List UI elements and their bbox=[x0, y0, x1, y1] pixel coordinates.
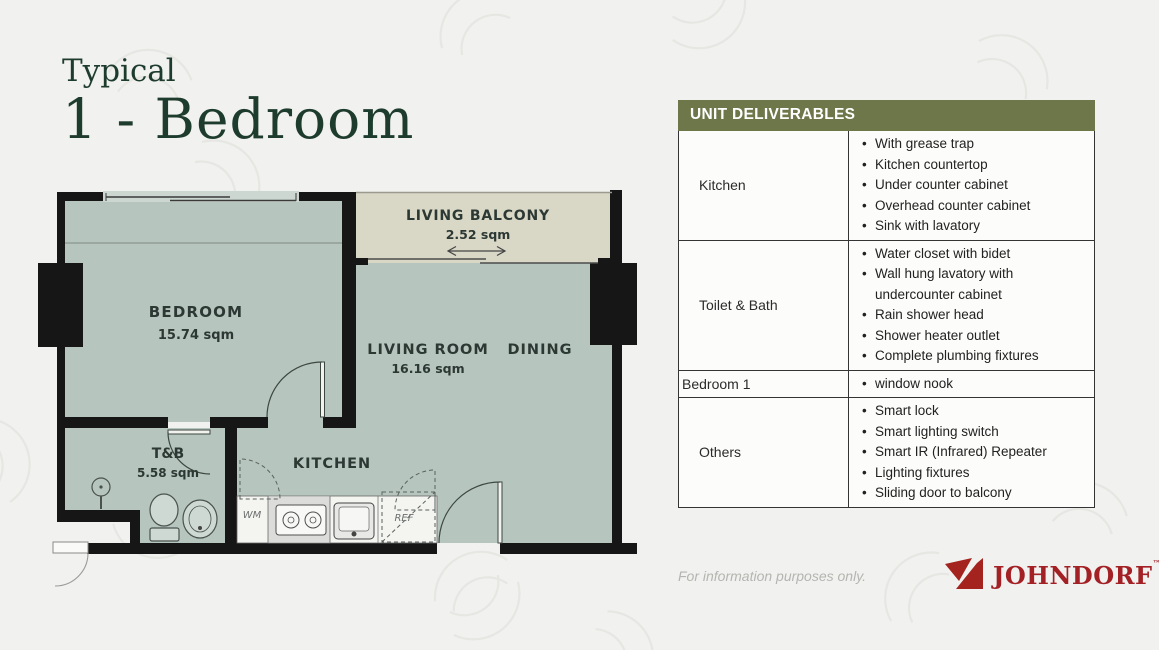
balcony-area: 2.52 sqm bbox=[446, 227, 511, 242]
deliverable-item: Complete plumbing fixtures bbox=[861, 346, 1088, 367]
lavatory-icon bbox=[183, 500, 217, 538]
deliverable-item: Under counter cabinet bbox=[861, 175, 1088, 196]
kitchen-label: KITCHEN bbox=[293, 456, 371, 472]
deliverables-row-label: Kitchen bbox=[679, 131, 849, 240]
kitchen-sink-icon bbox=[334, 503, 374, 539]
johndorf-logo-icon bbox=[944, 556, 984, 592]
trademark-symbol: ™ bbox=[1153, 558, 1159, 568]
deliverable-item: With grease trap bbox=[861, 134, 1088, 155]
toilet-bath-area: 5.58 sqm bbox=[137, 466, 199, 480]
table-body: KitchenWith grease trapKitchen counterto… bbox=[678, 131, 1095, 508]
service-door-leaf bbox=[53, 542, 88, 553]
bedroom-door-leaf bbox=[321, 362, 325, 417]
brand-name: JOHNDORF™ bbox=[993, 558, 1159, 590]
deliverables-item-list: Smart lockSmart lighting switchSmart IR … bbox=[849, 398, 1094, 507]
deliverables-item-list: With grease trapKitchen countertopUnder … bbox=[849, 131, 1094, 240]
service-door-swing bbox=[55, 553, 88, 586]
deliverables-row-label: Bedroom 1 bbox=[679, 371, 849, 398]
deliverables-row: Toilet & BathWater closet with bidetWall… bbox=[679, 240, 1094, 370]
stove-icon bbox=[276, 505, 326, 535]
brand-text: JOHNDORF bbox=[993, 561, 1153, 590]
deliverable-item: Wall hung lavatory with undercounter cab… bbox=[861, 264, 1088, 305]
deliverable-item: Kitchen countertop bbox=[861, 155, 1088, 176]
deliverables-row: KitchenWith grease trapKitchen counterto… bbox=[679, 131, 1094, 240]
deliverable-item: Smart lock bbox=[861, 401, 1088, 422]
deliverables-row: OthersSmart lockSmart lighting switchSma… bbox=[679, 397, 1094, 507]
deliverables-row: Bedroom 1window nook bbox=[679, 370, 1094, 398]
deliverable-item: Sliding door to balcony bbox=[861, 483, 1088, 504]
bedroom-label: BEDROOM bbox=[149, 303, 244, 321]
toilet-bath-label: T&B bbox=[152, 446, 184, 462]
title-unit-type: 1 - Bedroom bbox=[62, 92, 414, 147]
bedroom-area: 15.74 sqm bbox=[158, 328, 234, 343]
entry-door-leaf bbox=[498, 482, 502, 543]
deliverables-item-list: Water closet with bidetWall hung lavator… bbox=[849, 241, 1094, 370]
deliverable-item: Sink with lavatory bbox=[861, 216, 1088, 237]
balcony-label: LIVING BALCONY bbox=[406, 208, 550, 224]
deliverable-item: Smart lighting switch bbox=[861, 422, 1088, 443]
title-typical: Typical bbox=[62, 54, 414, 88]
unit-deliverables-table: UNIT DELIVERABLES KitchenWith grease tra… bbox=[678, 100, 1095, 508]
deliverable-item: Shower heater outlet bbox=[861, 326, 1088, 347]
living-room-label: LIVING ROOM bbox=[367, 342, 489, 358]
deliverables-row-label: Others bbox=[679, 398, 849, 507]
washing-machine-label: WM bbox=[243, 510, 262, 521]
deliverable-item: window nook bbox=[861, 374, 1088, 395]
brand-logo: JOHNDORF™ bbox=[944, 556, 1159, 592]
deliverable-item: Rain shower head bbox=[861, 305, 1088, 326]
toilet-bath-door-leaf bbox=[168, 430, 210, 434]
toilet-icon bbox=[150, 494, 179, 541]
table-header: UNIT DELIVERABLES bbox=[678, 100, 1095, 131]
refrigerator-label: REF bbox=[394, 513, 413, 524]
deliverable-item: Overhead counter cabinet bbox=[861, 196, 1088, 217]
living-room-area: 16.16 sqm bbox=[391, 361, 464, 376]
page-title: Typical 1 - Bedroom bbox=[62, 54, 414, 147]
dining-label: DINING bbox=[508, 342, 573, 358]
deliverables-item-list: window nook bbox=[849, 371, 1094, 398]
deliverables-row-label: Toilet & Bath bbox=[679, 241, 849, 370]
deliverable-item: Water closet with bidet bbox=[861, 244, 1088, 265]
deliverable-item: Lighting fixtures bbox=[861, 463, 1088, 484]
disclaimer-text: For information purposes only. bbox=[678, 568, 866, 584]
left-column bbox=[38, 263, 83, 347]
right-column bbox=[590, 263, 637, 345]
bedroom-window bbox=[103, 191, 299, 202]
deliverable-item: Smart IR (Infrared) Repeater bbox=[861, 442, 1088, 463]
